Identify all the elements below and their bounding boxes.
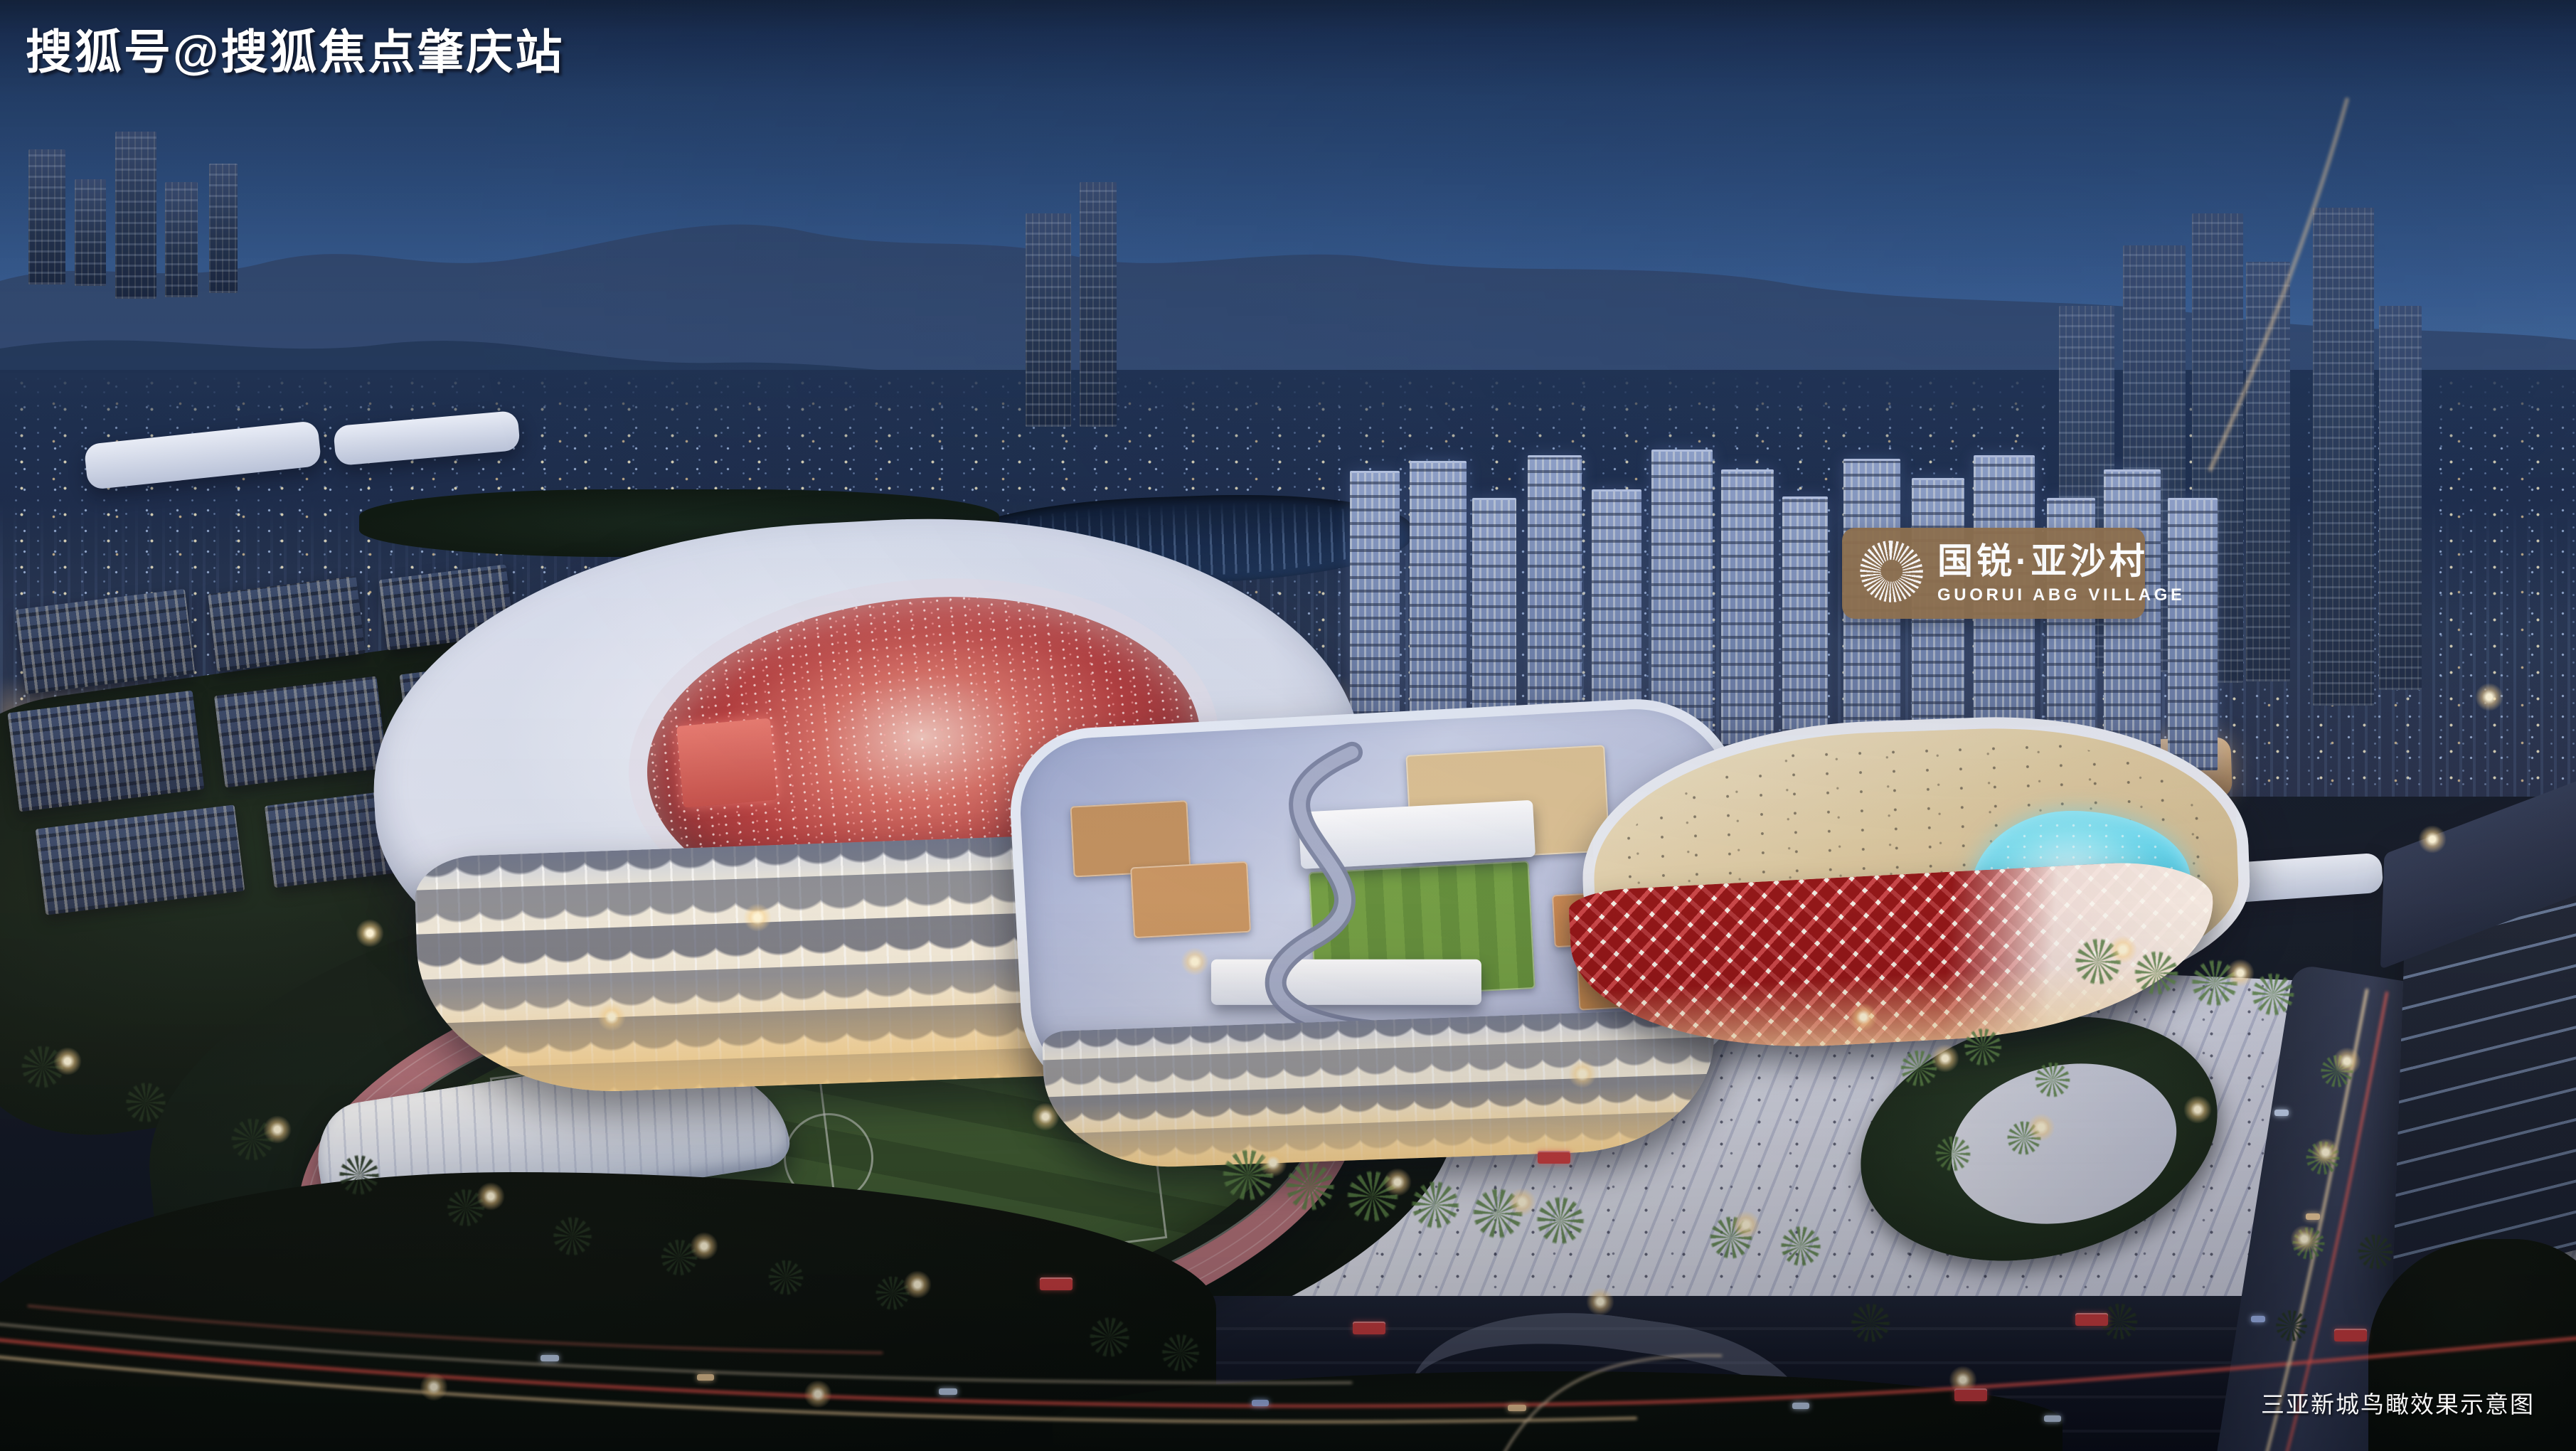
logo-badge: 国锐·亚沙村 GUORUI ABG VILLAGE [1842,528,2145,619]
logo-subtitle: GUORUI ABG VILLAGE [1937,586,2186,604]
office-building [2392,778,2576,1296]
logo-texts: 国锐·亚沙村 GUORUI ABG VILLAGE [1937,543,2186,604]
red-checker-facade [1568,858,2219,1058]
sunburst-logo-icon [1858,541,1923,606]
aerial-night-render: 搜狐号@搜狐焦点肇庆站 国锐·亚沙村 GUORUI ABG VILLAGE 三亚… [0,0,2576,1451]
aquatics-venue [1582,720,2233,1054]
caption: 三亚新城鸟瞰效果示意图 [2261,1386,2535,1420]
watermark: 搜狐号@搜狐焦点肇庆站 [26,14,564,83]
logo-title: 国锐·亚沙村 [1937,543,2186,580]
